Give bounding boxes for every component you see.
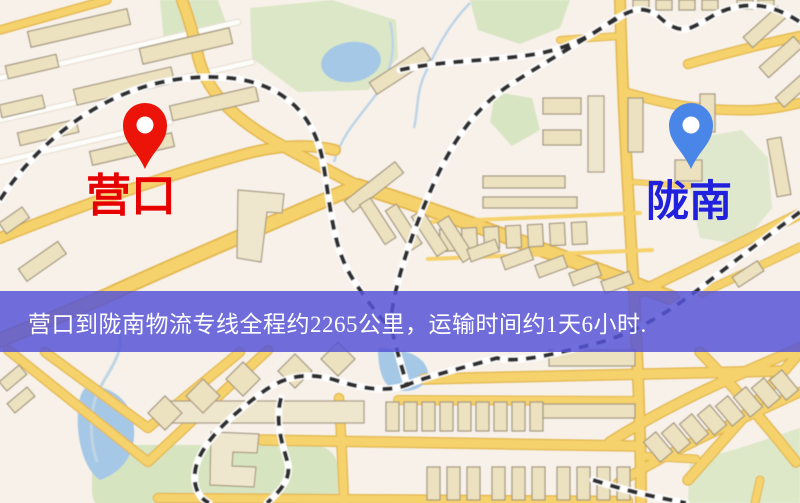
destination-city-label: 陇南: [646, 181, 732, 224]
map-artwork: [0, 0, 800, 503]
map-canvas[interactable]: 营口 陇南 营口到陇南物流专线全程约2265公里，运输时间约1天6小时.: [0, 0, 800, 503]
route-info-banner: 营口到陇南物流专线全程约2265公里，运输时间约1天6小时.: [0, 291, 800, 352]
route-info-text: 营口到陇南物流专线全程约2265公里，运输时间约1天6小时.: [28, 305, 647, 339]
origin-city-label: 营口: [86, 173, 176, 218]
